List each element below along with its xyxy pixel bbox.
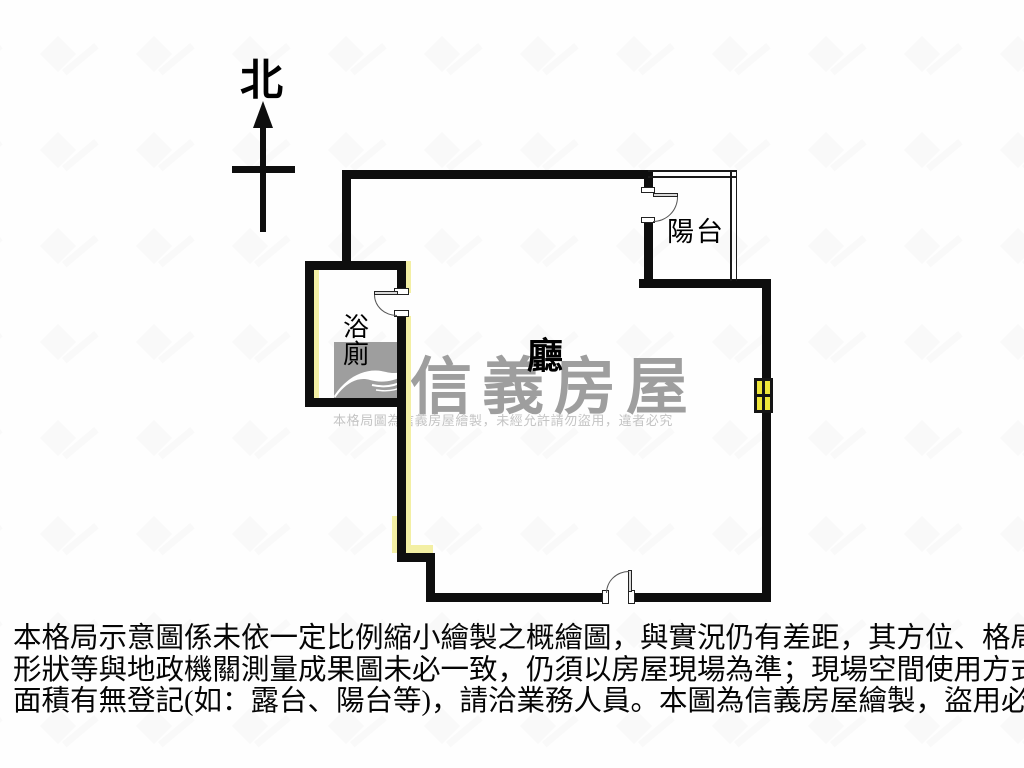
disclaimer-text: 本格局示意圖係未依一定比例縮小繪製之概繪圖，與實況仍有差距，其方位、格局、 形狀… [13,623,1017,718]
wall-right-lower [762,413,771,602]
room-label-bathroom-line1: 浴 [341,314,371,341]
room-label-living: 廳 [527,327,563,379]
disclaimer-line-2: 形狀等與地政機關測量成果圖未必一致，仍須以房屋現場為準；現場空間使用方式及 [13,655,1017,687]
room-label-bathroom-line2: 廁 [341,341,371,368]
wall-right-upper [762,279,771,378]
wall-bathroom-top [305,261,406,270]
disclaimer-line-1: 本格局示意圖係未依一定比例縮小繪製之概繪圖，與實況仍有差距，其方位、格局、 [13,623,1017,655]
north-crossbar [232,166,295,173]
balcony-outline [730,170,732,281]
wall-balcony-bottom [639,279,771,288]
door-jamb [628,590,635,604]
wall-bottom-right [633,593,771,602]
balcony-outline [736,170,738,281]
room-label-bathroom: 浴 廁 [341,314,371,368]
wall-bottom-left [426,593,606,602]
wall-west-lower [397,316,406,554]
room-label-balcony: 陽台 [667,210,725,249]
wall-left-upper [342,170,351,270]
wall-bathroom-bottom [305,398,406,407]
wall-accent [406,545,433,553]
window-marker [754,378,773,413]
wall-bathroom-left [305,261,314,407]
north-label: 北 [240,46,283,108]
wall-accent [406,316,411,553]
balcony-outline [648,176,737,178]
wall-balcony-left-lower [644,221,653,288]
wall-top [342,170,650,179]
entry-door-arc [606,571,629,593]
bathroom-door-arc [374,295,397,316]
wall-accent [314,270,319,398]
balcony-outline [648,170,737,172]
disclaimer-line-3: 面積有無登記(如：露台、陽台等)，請洽業務人員。本圖為信義房屋繪製，盜用必究。 [13,686,1017,718]
north-arrow-stem [260,124,266,232]
